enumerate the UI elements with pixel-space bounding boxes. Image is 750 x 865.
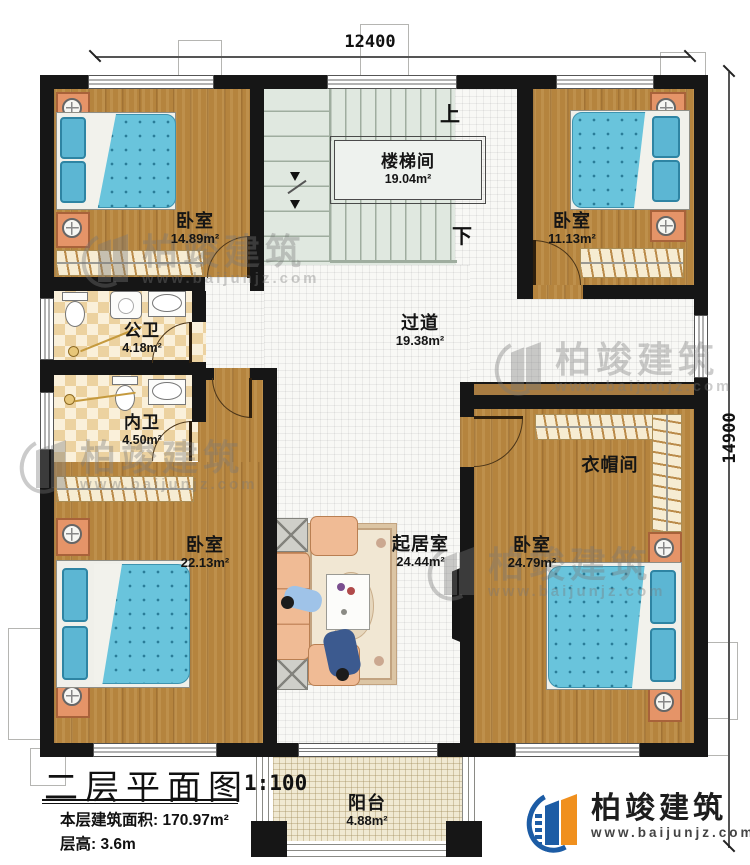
room-area: 24.79m² bbox=[492, 556, 572, 571]
door-panel bbox=[474, 416, 523, 419]
person-figure bbox=[281, 596, 294, 609]
room-label-stairwell: 楼梯间 19.04m² bbox=[334, 140, 482, 200]
door-panel bbox=[189, 322, 192, 363]
pillow bbox=[652, 116, 680, 158]
room-label-bath-private: 内卫 4.50m² bbox=[108, 414, 176, 447]
nightstand bbox=[56, 518, 90, 556]
window bbox=[93, 743, 217, 757]
pillow bbox=[62, 626, 88, 680]
room-name: 卧室 bbox=[160, 536, 250, 556]
room-label-bath-public: 公卫 4.18m² bbox=[108, 322, 176, 355]
pillow bbox=[650, 570, 676, 624]
window bbox=[515, 743, 640, 757]
window bbox=[556, 75, 654, 89]
cloakroom-rack bbox=[535, 414, 653, 440]
floor-drain bbox=[64, 394, 75, 405]
stair-break-arrow bbox=[290, 200, 300, 209]
wall bbox=[474, 395, 694, 409]
doorway-threshold bbox=[192, 322, 206, 363]
door-panel bbox=[247, 236, 250, 278]
room-label-corridor: 过道 19.38m² bbox=[385, 314, 455, 349]
room-name: 卧室 bbox=[150, 212, 240, 232]
dimension-line-top bbox=[95, 56, 690, 58]
room-label-bedroom-top-right: 卧室 11.13m² bbox=[536, 212, 608, 247]
room-area: 22.13m² bbox=[160, 556, 250, 571]
bedside-lamp-icon bbox=[654, 538, 674, 558]
doorway-threshold bbox=[205, 277, 250, 291]
room-name: 阳台 bbox=[327, 794, 407, 814]
wall bbox=[250, 89, 264, 291]
room-area: 24.44m² bbox=[378, 555, 463, 570]
wall bbox=[192, 368, 214, 380]
toilet-tank bbox=[62, 292, 88, 301]
room-label-bedroom-bottom-right: 卧室 24.79m² bbox=[492, 536, 572, 571]
room-area: 19.38m² bbox=[385, 334, 455, 349]
wall bbox=[460, 467, 474, 743]
stair-divider bbox=[329, 89, 331, 262]
window bbox=[327, 75, 457, 89]
balcony-sliding-door bbox=[298, 743, 438, 757]
toilet bbox=[65, 301, 85, 327]
window bbox=[88, 75, 214, 89]
window bbox=[694, 315, 708, 378]
coffee-table bbox=[326, 574, 370, 630]
pillow bbox=[60, 117, 86, 159]
floor-area-label: 本层建筑面积: bbox=[60, 812, 158, 829]
armchair bbox=[310, 516, 358, 556]
room-area: 11.13m² bbox=[536, 232, 608, 247]
eave-outline bbox=[706, 642, 738, 720]
nightstand bbox=[56, 212, 90, 248]
company-website: www.baijunjz.com bbox=[591, 825, 750, 840]
floor-plan-sheet: 柏竣建筑 www.baijunjz.com 柏竣建筑 www.baijunjz.… bbox=[0, 0, 750, 865]
wall bbox=[583, 285, 694, 299]
company-logo: 柏竣建筑 www.baijunjz.com bbox=[528, 792, 750, 852]
floor-height-label: 层高: bbox=[60, 836, 96, 853]
wall bbox=[517, 89, 533, 299]
wall bbox=[54, 277, 205, 291]
rug-pattern bbox=[374, 656, 384, 666]
room-label-bedroom-bottom-left: 卧室 22.13m² bbox=[160, 536, 250, 571]
room-area: 4.88m² bbox=[327, 814, 407, 829]
room-label-living-room: 起居室 24.44m² bbox=[378, 535, 463, 570]
nightstand bbox=[650, 210, 686, 242]
wardrobe bbox=[580, 248, 684, 278]
room-name: 过道 bbox=[385, 314, 455, 334]
bed-duvet bbox=[548, 566, 646, 688]
sink bbox=[152, 382, 182, 400]
room-name: 公卫 bbox=[108, 322, 176, 341]
balcony-pillar bbox=[446, 821, 482, 857]
floor-area-value: 170.97m² bbox=[162, 812, 228, 829]
room-name: 衣帽间 bbox=[560, 456, 660, 476]
pillow bbox=[60, 161, 86, 203]
nightstand bbox=[648, 686, 682, 722]
room-name: 内卫 bbox=[108, 414, 176, 433]
toilet-tank bbox=[112, 376, 138, 385]
room-label-bedroom-top-left: 卧室 14.89m² bbox=[150, 212, 240, 247]
table-decor bbox=[341, 609, 347, 615]
stair-down-label: 下 bbox=[452, 220, 472, 249]
stair-break-arrow bbox=[290, 172, 300, 181]
door-panel bbox=[533, 240, 536, 285]
room-name: 楼梯间 bbox=[381, 153, 435, 172]
bedside-lamp-icon bbox=[62, 524, 82, 544]
pillow bbox=[652, 160, 680, 202]
floor-drain bbox=[68, 346, 79, 357]
doorway-threshold bbox=[460, 417, 474, 467]
floor-corridor-right bbox=[517, 299, 694, 382]
pillow bbox=[62, 568, 88, 622]
room-area: 19.04m² bbox=[385, 172, 432, 186]
window bbox=[40, 392, 54, 450]
room-name: 卧室 bbox=[492, 536, 572, 556]
company-logo-icon bbox=[528, 792, 582, 852]
title-underline bbox=[42, 799, 238, 804]
room-label-cloakroom: 衣帽间 bbox=[560, 456, 660, 476]
stair-up-label: 上 bbox=[440, 98, 460, 127]
floor-area-line: 本层建筑面积: 170.97m² bbox=[60, 808, 229, 830]
door-panel bbox=[249, 378, 252, 418]
dimension-width-label: 12400 bbox=[325, 32, 415, 52]
floor-height-line: 层高: 3.6m bbox=[60, 832, 136, 854]
room-name: 卧室 bbox=[536, 212, 608, 232]
person-figure bbox=[336, 668, 349, 681]
washer bbox=[110, 291, 142, 319]
sink bbox=[152, 294, 182, 312]
stair-flight-upper bbox=[330, 89, 457, 141]
wall bbox=[250, 368, 277, 380]
balcony-pillar bbox=[251, 821, 287, 857]
eave-outline bbox=[8, 628, 43, 740]
bedside-lamp-icon bbox=[654, 692, 674, 712]
wardrobe bbox=[56, 250, 204, 276]
bedside-lamp-icon bbox=[62, 686, 82, 706]
room-name: 起居室 bbox=[378, 535, 463, 555]
side-table bbox=[276, 658, 308, 690]
room-area: 4.50m² bbox=[108, 433, 176, 447]
bedside-lamp-icon bbox=[62, 218, 82, 238]
room-area: 4.18m² bbox=[108, 341, 176, 355]
toilet bbox=[115, 385, 135, 411]
wardrobe bbox=[56, 476, 194, 502]
stair-bottom-edge bbox=[330, 260, 457, 263]
door-panel bbox=[189, 421, 192, 461]
floor-corridor-bath-access bbox=[198, 280, 264, 372]
side-table bbox=[274, 518, 308, 552]
washer-drum bbox=[118, 298, 134, 314]
plan-scale: 1:100 bbox=[244, 771, 307, 795]
pillow bbox=[650, 628, 676, 682]
wall bbox=[263, 372, 277, 743]
table-decor bbox=[347, 587, 355, 595]
bedside-lamp-icon bbox=[656, 216, 676, 236]
room-area: 14.89m² bbox=[150, 232, 240, 247]
doorway-threshold bbox=[530, 285, 583, 299]
wall bbox=[694, 75, 708, 757]
table-decor bbox=[337, 583, 345, 591]
floor-height-value: 3.6m bbox=[100, 836, 135, 853]
room-label-balcony: 阳台 4.88m² bbox=[327, 794, 407, 829]
dimension-height-label: 14900 bbox=[720, 398, 740, 478]
window bbox=[40, 298, 54, 360]
stair-flight-lower bbox=[330, 200, 457, 260]
wall bbox=[192, 291, 206, 322]
wall bbox=[460, 382, 474, 417]
company-name: 柏竣建筑 bbox=[591, 792, 750, 825]
